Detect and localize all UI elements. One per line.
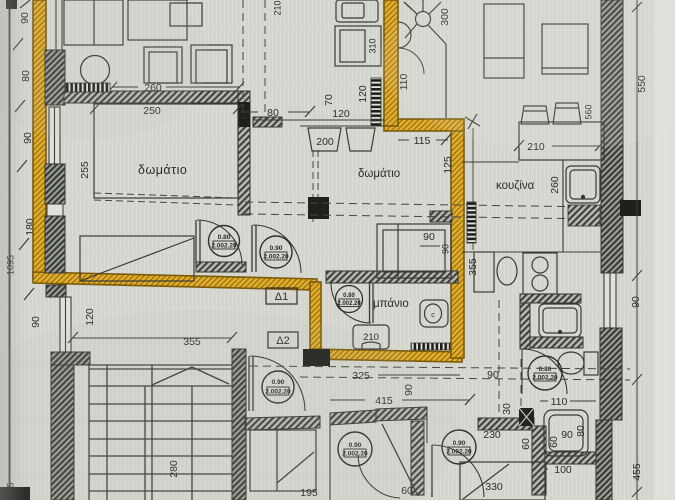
- svg-text:80: 80: [575, 425, 587, 437]
- svg-text:90: 90: [487, 369, 499, 381]
- svg-text:90: 90: [630, 296, 642, 308]
- svg-text:100: 100: [554, 464, 572, 476]
- svg-text:c: c: [431, 312, 435, 319]
- svg-text:115: 115: [414, 135, 431, 147]
- svg-text:2.002.20: 2.002.20: [263, 254, 289, 261]
- svg-text:μπάνιο: μπάνιο: [373, 298, 409, 310]
- svg-text:90: 90: [30, 316, 42, 328]
- svg-text:2.002.20: 2.002.20: [337, 301, 361, 307]
- svg-text:355: 355: [467, 258, 479, 276]
- svg-text:90: 90: [423, 231, 435, 243]
- svg-text:0.90: 0.90: [270, 245, 283, 252]
- svg-text:455: 455: [631, 463, 643, 481]
- svg-text:125: 125: [442, 156, 454, 174]
- svg-text:210: 210: [273, 0, 283, 15]
- svg-text:90: 90: [561, 429, 573, 441]
- svg-text:230: 230: [483, 429, 501, 441]
- svg-text:2.002.20: 2.002.20: [211, 243, 237, 250]
- svg-text:30: 30: [501, 403, 513, 415]
- svg-text:δωμάτιο: δωμάτιο: [358, 168, 400, 180]
- svg-text:70: 70: [323, 94, 335, 106]
- svg-text:κουζίνα: κουζίνα: [496, 180, 535, 192]
- svg-text:120: 120: [357, 85, 369, 103]
- svg-text:80: 80: [267, 107, 279, 119]
- svg-text:δωμάτιο: δωμάτιο: [138, 163, 187, 177]
- svg-text:2.002.20: 2.002.20: [532, 375, 558, 382]
- svg-text:110: 110: [551, 396, 568, 408]
- svg-text:120: 120: [332, 108, 350, 120]
- svg-text:0.80: 0.80: [343, 293, 355, 299]
- svg-text:60: 60: [548, 436, 560, 448]
- svg-text:310: 310: [368, 38, 378, 53]
- svg-text:0.80: 0.80: [218, 234, 231, 241]
- svg-text:330: 330: [485, 481, 503, 493]
- svg-text:260: 260: [549, 176, 561, 194]
- svg-text:0.80: 0.80: [539, 366, 552, 373]
- svg-text:Δ1: Δ1: [275, 291, 288, 303]
- svg-text:255: 255: [79, 161, 91, 179]
- svg-text:60: 60: [520, 438, 532, 450]
- svg-text:200: 200: [316, 136, 334, 148]
